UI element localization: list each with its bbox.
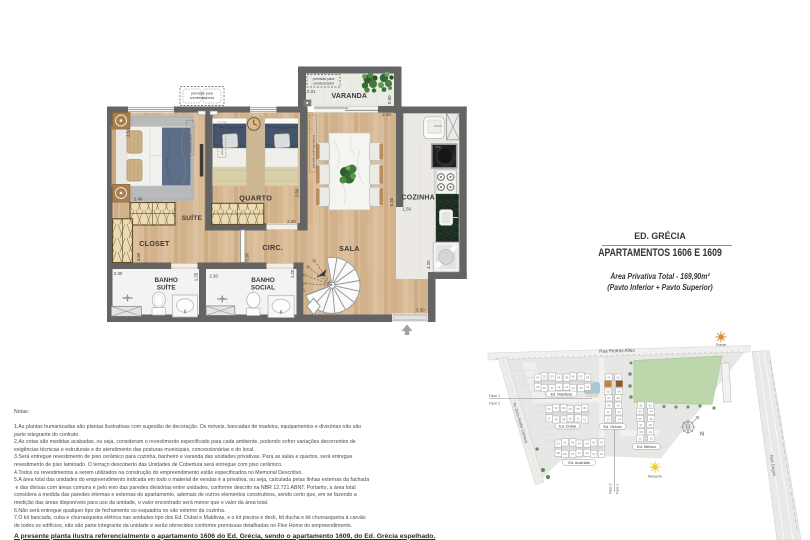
svg-text:1.25: 1.25	[193, 272, 198, 281]
svg-text:2.30: 2.30	[209, 273, 218, 278]
svg-text:Fase 1: Fase 1	[616, 484, 620, 494]
svg-text:12: 12	[557, 385, 561, 389]
svg-text:Nascente: Nascente	[648, 475, 662, 479]
svg-text:08: 08	[586, 376, 590, 380]
svg-text:condensadores: condensadores	[190, 96, 215, 100]
svg-text:03: 03	[638, 410, 642, 414]
svg-text:4.20: 4.20	[426, 260, 431, 269]
svg-text:previsão para: previsão para	[313, 77, 335, 81]
svg-text:12: 12	[586, 451, 590, 455]
svg-text:0.90: 0.90	[245, 252, 250, 261]
svg-text:QUARTO: QUARTO	[239, 193, 272, 202]
svg-text:14: 14	[618, 417, 622, 421]
svg-text:2.40: 2.40	[382, 112, 391, 117]
svg-text:SALA: SALA	[339, 244, 360, 253]
svg-text:BANHO: BANHO	[251, 277, 274, 284]
svg-text:05: 05	[565, 376, 569, 380]
svg-text:04: 04	[650, 410, 654, 414]
svg-text:Fase 2: Fase 2	[489, 402, 500, 406]
svg-text:previsão infra: previsão infra	[220, 137, 224, 155]
svg-text:2.30: 2.30	[114, 271, 123, 276]
svg-text:13: 13	[606, 417, 610, 421]
svg-text:05: 05	[638, 417, 642, 421]
svg-text:02: 02	[554, 406, 558, 410]
svg-text:11: 11	[578, 451, 581, 455]
svg-text:Ed. Maldivas: Ed. Maldivas	[551, 393, 573, 397]
svg-text:2.31: 2.31	[307, 89, 316, 94]
svg-text:10: 10	[569, 416, 573, 420]
svg-text:09: 09	[536, 385, 540, 389]
svg-text:01: 01	[557, 442, 561, 446]
svg-text:04: 04	[557, 376, 561, 380]
svg-text:09: 09	[562, 418, 566, 422]
svg-text:05: 05	[586, 442, 590, 446]
svg-text:Ed. Austrália: Ed. Austrália	[568, 461, 590, 465]
svg-text:SOCIAL: SOCIAL	[251, 285, 275, 292]
svg-text:15: 15	[579, 386, 583, 390]
svg-text:12: 12	[650, 436, 654, 440]
svg-text:16: 16	[586, 385, 590, 389]
svg-text:Ed. Dubai: Ed. Dubai	[559, 425, 576, 429]
svg-text:1.20: 1.20	[290, 269, 295, 278]
svg-text:03: 03	[571, 440, 575, 444]
svg-text:03: 03	[551, 374, 555, 378]
svg-text:08: 08	[649, 423, 653, 427]
svg-text:3.30: 3.30	[416, 308, 425, 313]
svg-text:10: 10	[617, 403, 621, 407]
svg-text:0.90: 0.90	[387, 95, 392, 104]
svg-text:12: 12	[583, 418, 587, 422]
svg-text:04: 04	[578, 442, 582, 446]
svg-text:Fase 1: Fase 1	[489, 394, 500, 398]
svg-text:previsão rede frigorígena: previsão rede frigorígena	[312, 134, 316, 168]
svg-text:13: 13	[565, 385, 569, 389]
svg-text:04: 04	[569, 407, 573, 411]
svg-text:2.30: 2.30	[287, 219, 296, 224]
svg-text:Fase 2: Fase 2	[609, 484, 613, 494]
svg-text:3.50: 3.50	[136, 252, 141, 261]
svg-text:N: N	[700, 432, 704, 438]
svg-text:03: 03	[562, 406, 566, 410]
svg-text:02: 02	[649, 403, 653, 407]
svg-text:10: 10	[543, 386, 547, 390]
svg-text:Ed. México: Ed. México	[637, 445, 656, 449]
svg-text:11: 11	[639, 436, 642, 440]
svg-text:02: 02	[563, 440, 567, 444]
svg-text:Ed. Grécia: Ed. Grécia	[604, 425, 623, 429]
svg-text:07: 07	[579, 374, 583, 378]
svg-text:2.50: 2.50	[294, 188, 299, 197]
svg-text:09: 09	[607, 403, 611, 407]
svg-text:01: 01	[548, 407, 552, 411]
svg-text:Rua Pedras Altas: Rua Pedras Altas	[599, 348, 635, 354]
svg-text:11: 11	[607, 410, 610, 414]
svg-text:08: 08	[617, 396, 621, 400]
svg-text:3.58: 3.58	[125, 128, 130, 137]
svg-text:14: 14	[572, 386, 576, 390]
svg-text:01: 01	[639, 403, 643, 407]
svg-text:SUÍTE: SUÍTE	[157, 282, 177, 291]
svg-text:07: 07	[548, 416, 552, 420]
svg-text:14: 14	[600, 452, 604, 456]
svg-text:01: 01	[536, 376, 540, 380]
svg-text:08: 08	[557, 451, 561, 455]
svg-text:condensador: condensador	[313, 81, 335, 85]
svg-text:06: 06	[583, 406, 587, 410]
svg-text:02: 02	[543, 374, 547, 378]
svg-text:COZINHA: COZINHA	[402, 195, 435, 202]
svg-text:06: 06	[592, 440, 596, 444]
svg-text:10: 10	[649, 430, 653, 434]
svg-text:09: 09	[639, 430, 643, 434]
svg-text:CLOSET: CLOSET	[139, 239, 170, 248]
svg-text:11: 11	[551, 386, 554, 390]
svg-text:05: 05	[606, 389, 610, 393]
svg-text:SUÍTE: SUÍTE	[182, 213, 203, 222]
svg-text:06: 06	[572, 374, 576, 378]
svg-text:previsão para: previsão para	[191, 91, 213, 95]
svg-text:BANHO: BANHO	[154, 277, 177, 284]
svg-text:2.40: 2.40	[134, 196, 143, 201]
svg-text:05: 05	[577, 407, 581, 411]
svg-text:13: 13	[592, 452, 596, 456]
svg-text:10: 10	[571, 452, 575, 456]
svg-text:VARANDA: VARANDA	[331, 92, 367, 100]
svg-text:1.50: 1.50	[403, 207, 412, 212]
svg-text:08: 08	[554, 418, 558, 422]
svg-text:06: 06	[618, 389, 622, 393]
svg-text:previsão infra: previsão infra	[189, 135, 193, 153]
svg-text:07: 07	[600, 440, 604, 444]
svg-text:Poente: Poente	[716, 343, 727, 347]
svg-text:07: 07	[607, 396, 611, 400]
svg-text:CIRC.: CIRC.	[262, 243, 283, 252]
svg-text:12: 12	[618, 410, 622, 414]
svg-text:07: 07	[639, 423, 643, 427]
svg-text:09: 09	[563, 452, 567, 456]
svg-text:11: 11	[577, 416, 580, 420]
svg-text:06: 06	[650, 417, 654, 421]
svg-text:01: 01	[607, 375, 611, 379]
svg-text:02: 02	[617, 375, 621, 379]
svg-text:5.30: 5.30	[389, 197, 394, 206]
